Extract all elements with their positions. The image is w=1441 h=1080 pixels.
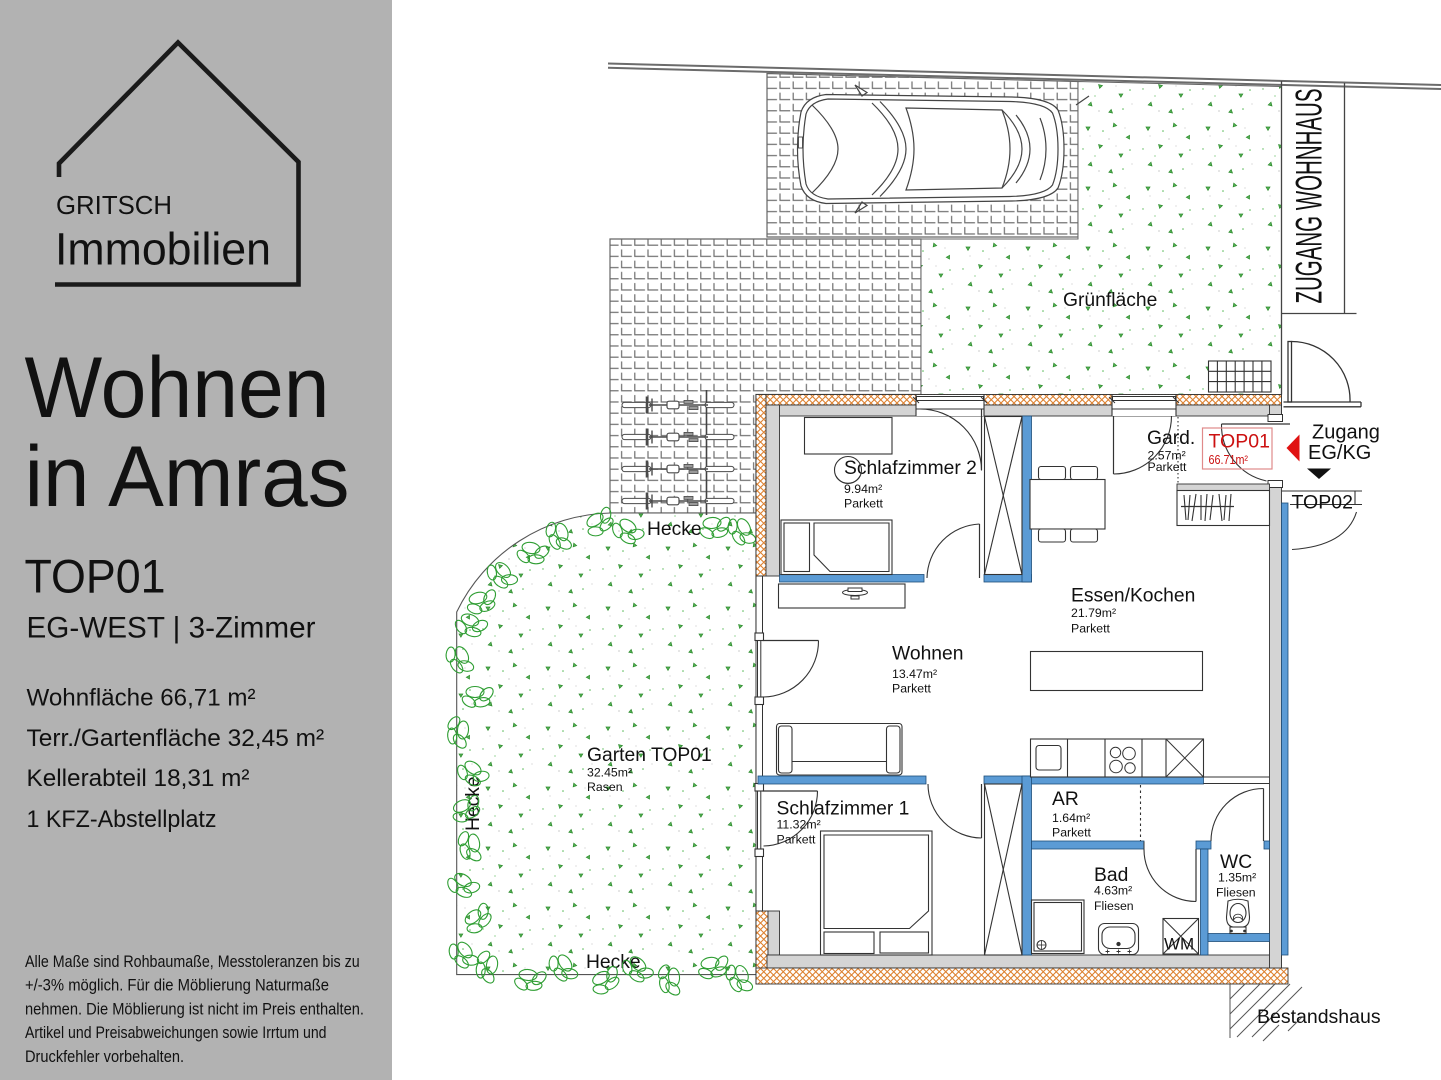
svg-text:Kellerabteil 18,31 m²: Kellerabteil 18,31 m² bbox=[27, 765, 250, 792]
svg-text:Schlafzimmer 1: Schlafzimmer 1 bbox=[777, 799, 910, 820]
svg-text:GRITSCH: GRITSCH bbox=[56, 190, 172, 220]
svg-text:13.47m²: 13.47m² bbox=[892, 667, 937, 681]
svg-text:WM: WM bbox=[1164, 935, 1194, 954]
svg-text:9.94m²: 9.94m² bbox=[844, 482, 882, 496]
svg-text:1.35m²: 1.35m² bbox=[1218, 871, 1256, 885]
svg-text:Garten TOP01: Garten TOP01 bbox=[587, 745, 712, 766]
svg-text:EG-WEST | 3-Zimmer: EG-WEST | 3-Zimmer bbox=[27, 612, 316, 645]
svg-text:11.32m²: 11.32m² bbox=[777, 818, 821, 832]
svg-text:in Amras: in Amras bbox=[25, 429, 350, 525]
svg-text:TOP02: TOP02 bbox=[1292, 492, 1353, 514]
svg-text:Immobilien: Immobilien bbox=[55, 224, 271, 275]
svg-text:Hecke: Hecke bbox=[463, 776, 484, 831]
svg-text:TOP01: TOP01 bbox=[1209, 431, 1270, 453]
svg-text:ZUGANG WOHNHAUS: ZUGANG WOHNHAUS bbox=[1289, 89, 1330, 304]
svg-text:nehmen. Die Möblierung ist nic: nehmen. Die Möblierung ist nicht im Prei… bbox=[25, 999, 364, 1018]
svg-text:EG/KG: EG/KG bbox=[1308, 442, 1371, 464]
svg-text:Wohnen: Wohnen bbox=[25, 340, 330, 436]
svg-text:Fliesen: Fliesen bbox=[1094, 899, 1134, 913]
svg-text:Parkett: Parkett bbox=[1052, 826, 1092, 840]
svg-text:Wohnfläche 66,71 m²: Wohnfläche 66,71 m² bbox=[27, 684, 256, 711]
svg-text:Hecke: Hecke bbox=[647, 519, 702, 540]
svg-text:Gard.: Gard. bbox=[1147, 428, 1195, 449]
svg-text:Parkett: Parkett bbox=[777, 833, 817, 847]
svg-text:Parkett: Parkett bbox=[1071, 622, 1111, 636]
svg-text:Fliesen: Fliesen bbox=[1216, 886, 1256, 900]
svg-text:Alle Maße sind Rohbaumaße, Mes: Alle Maße sind Rohbaumaße, Messtoleranze… bbox=[25, 952, 360, 971]
svg-text:Terr./Gartenfläche 32,45 m²: Terr./Gartenfläche 32,45 m² bbox=[27, 725, 325, 752]
svg-text:Druckfehler vorbehalten.: Druckfehler vorbehalten. bbox=[25, 1047, 184, 1066]
svg-text:Parkett: Parkett bbox=[844, 497, 884, 511]
svg-text:TOP01: TOP01 bbox=[25, 549, 166, 602]
svg-text:AR: AR bbox=[1052, 789, 1079, 810]
svg-text:Parkett: Parkett bbox=[892, 682, 932, 696]
svg-text:1.64m²: 1.64m² bbox=[1052, 811, 1090, 825]
svg-text:Grünfläche: Grünfläche bbox=[1063, 290, 1157, 311]
svg-text:66.71m²: 66.71m² bbox=[1209, 452, 1249, 467]
svg-text:Parkett: Parkett bbox=[1148, 460, 1188, 474]
svg-text:Bestandshaus: Bestandshaus bbox=[1257, 1006, 1381, 1028]
svg-text:Essen/Kochen: Essen/Kochen bbox=[1071, 586, 1195, 607]
svg-text:+/-3% möglich. Für die Möblier: +/-3% möglich. Für die Möblierung Naturm… bbox=[25, 976, 329, 995]
svg-text:Zugang: Zugang bbox=[1312, 422, 1380, 444]
svg-text:1 KFZ-Abstellplatz: 1 KFZ-Abstellplatz bbox=[27, 806, 217, 833]
svg-text:Wohnen: Wohnen bbox=[892, 644, 963, 665]
svg-text:Rasen: Rasen bbox=[587, 780, 623, 794]
svg-text:4.63m²: 4.63m² bbox=[1094, 884, 1132, 898]
svg-text:32.45m²: 32.45m² bbox=[587, 766, 632, 780]
svg-text:Artikel und Preisabweichungen: Artikel und Preisabweichungen sowie Irrt… bbox=[25, 1023, 327, 1042]
svg-text:Schlafzimmer 2: Schlafzimmer 2 bbox=[844, 458, 977, 479]
svg-text:21.79m²: 21.79m² bbox=[1071, 606, 1116, 620]
